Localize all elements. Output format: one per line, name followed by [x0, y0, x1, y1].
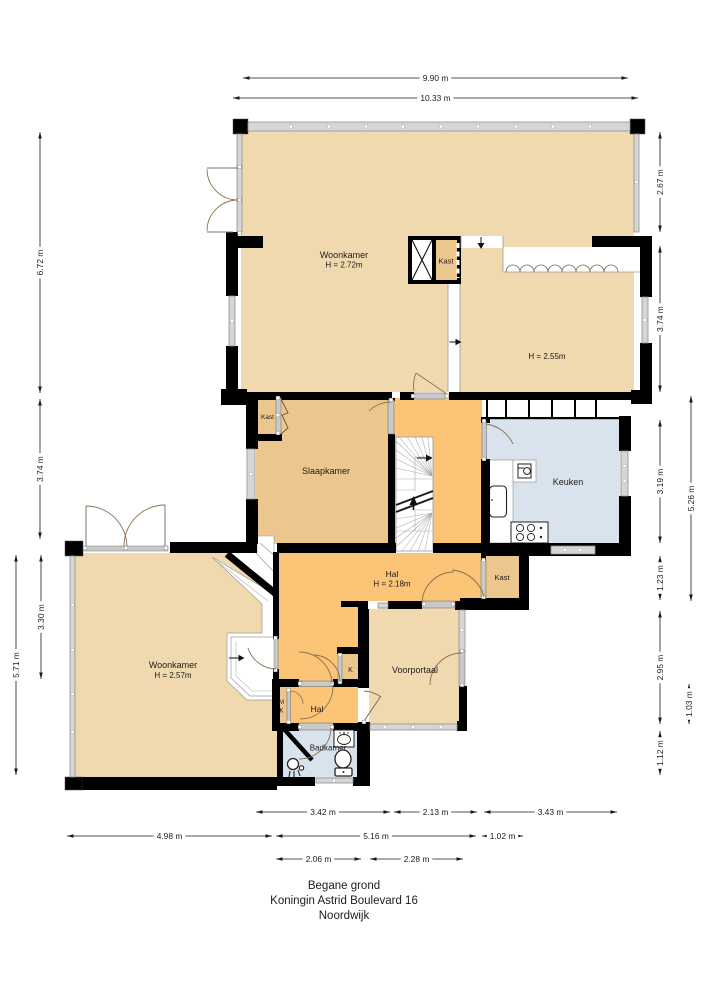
- svg-text:Hal: Hal: [386, 569, 399, 579]
- svg-text:Kast: Kast: [261, 414, 274, 421]
- svg-text:2.28 m: 2.28 m: [404, 854, 430, 864]
- svg-text:Keuken: Keuken: [553, 477, 584, 487]
- svg-text:9.90 m: 9.90 m: [423, 73, 449, 83]
- svg-text:Voorportaal: Voorportaal: [392, 665, 438, 675]
- svg-text:Woonkamer: Woonkamer: [320, 250, 368, 260]
- svg-text:Kast: Kast: [438, 257, 454, 266]
- svg-text:5.16 m: 5.16 m: [363, 831, 389, 841]
- svg-text:H = 2.55m: H = 2.55m: [528, 352, 565, 361]
- svg-text:10.33 m: 10.33 m: [420, 93, 450, 103]
- svg-text:3.43 m: 3.43 m: [538, 807, 564, 817]
- svg-text:4.98 m: 4.98 m: [157, 831, 183, 841]
- svg-text:1.02 m: 1.02 m: [490, 831, 516, 841]
- svg-text:6.72 m: 6.72 m: [35, 250, 45, 276]
- svg-text:K: K: [279, 709, 283, 715]
- svg-text:3.19 m: 3.19 m: [655, 469, 665, 495]
- svg-text:Koningin Astrid Boulevard 16: Koningin Astrid Boulevard 16: [270, 895, 418, 907]
- svg-text:5.26 m: 5.26 m: [686, 486, 696, 512]
- svg-text:2.13 m: 2.13 m: [423, 807, 449, 817]
- svg-text:5.71 m: 5.71 m: [11, 652, 21, 678]
- svg-text:Kast: Kast: [494, 573, 510, 582]
- svg-text:3.74 m: 3.74 m: [35, 456, 45, 482]
- svg-text:3.74 m: 3.74 m: [655, 306, 665, 332]
- svg-text:H = 2.57m: H = 2.57m: [154, 671, 191, 680]
- svg-text:Noordwijk: Noordwijk: [319, 910, 370, 922]
- svg-text:1.23 m: 1.23 m: [655, 565, 665, 591]
- svg-text:1.03 m: 1.03 m: [684, 691, 694, 717]
- svg-text:Slaapkamer: Slaapkamer: [302, 466, 350, 476]
- svg-text:M: M: [279, 700, 284, 706]
- svg-text:2.06 m: 2.06 m: [306, 854, 332, 864]
- svg-text:Woonkamer: Woonkamer: [149, 660, 197, 670]
- svg-text:Begane grond: Begane grond: [308, 880, 380, 892]
- svg-text:Hal: Hal: [311, 704, 324, 714]
- svg-text:K: K: [348, 667, 353, 674]
- svg-text:2.67 m: 2.67 m: [655, 169, 665, 195]
- svg-text:Badkamer: Badkamer: [310, 744, 347, 753]
- svg-text:3.42 m: 3.42 m: [310, 807, 336, 817]
- svg-text:3.30 m: 3.30 m: [36, 604, 46, 630]
- svg-text:2.95 m: 2.95 m: [655, 655, 665, 681]
- svg-text:H = 2.18m: H = 2.18m: [373, 580, 410, 589]
- svg-text:H = 2.72m: H = 2.72m: [325, 261, 362, 270]
- svg-text:1.12 m: 1.12 m: [655, 740, 665, 766]
